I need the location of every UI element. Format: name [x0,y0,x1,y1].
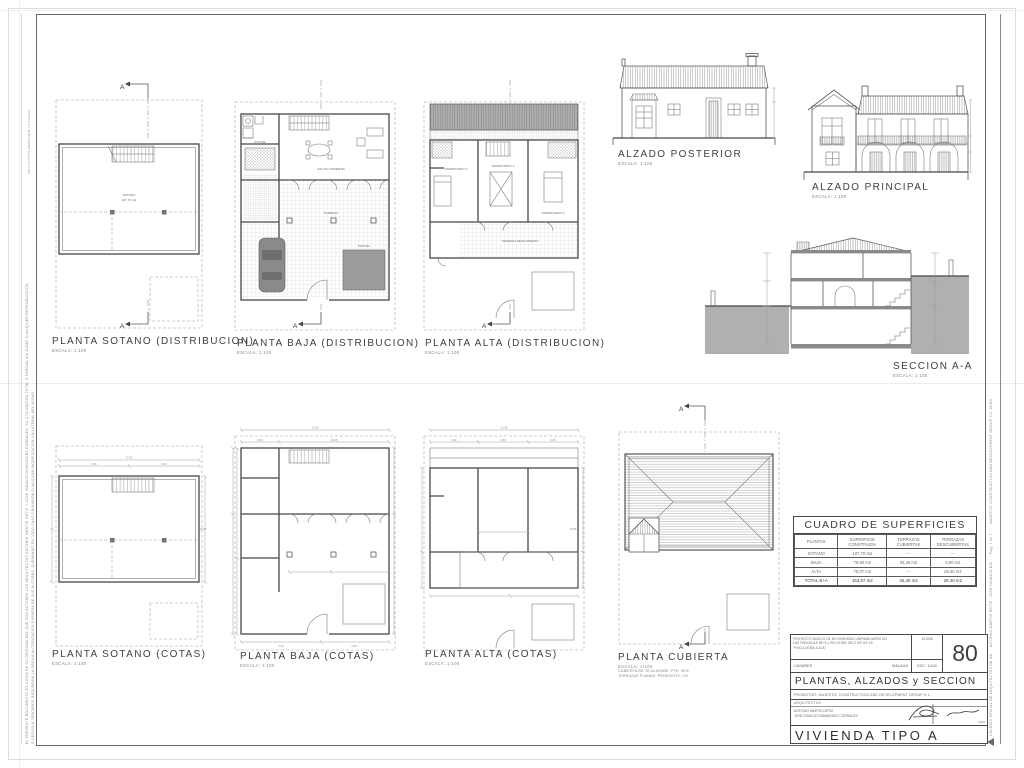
drawing-alzado-principal [800,40,972,185]
coa-stamp-icon [987,738,994,746]
archival-code: 08L2-42/T705-0929Z/URN-LU/TU2/A3 [27,54,31,174]
svg-text:4,90: 4,90 [161,462,167,466]
drawing-planta-sotano-distribucion: A SOTANO 107,70 m2 A [50,72,208,340]
svg-text:6,45: 6,45 [91,462,97,466]
room-label-terraza: TERRAZA [324,211,339,215]
label-planta-baja-cotas: PLANTA BAJA (COTAS)ESCALA: 1:100 [240,652,375,668]
balcony-railing [858,136,966,145]
drawing-planta-baja-cotas: 12,95 3,80 10,65 2,60 6,45 [231,412,399,654]
promoter-line: PROMOTOR: MAJESTIC CONSTRUCTION AND DEVE… [791,690,987,700]
tower [808,90,860,172]
label-planta-sotano-distribucion: PLANTA SOTANO (DISTRIBUCION)ESCALA: 1:10… [52,337,254,353]
signature-icon [903,702,981,724]
left-disclaimer-line2: O CESION A TERCEROS REQUERIRA LA PREVIA … [31,184,35,744]
titleblock-date: 121006 [911,635,942,659]
svg-text:10,65: 10,65 [570,527,577,531]
titleblock-code: 0508 [978,720,985,724]
label-alzado-principal: ALZADO PRINCIPALESCALA: 1:100 [812,183,929,199]
drawing-planta-sotano-cotas: 12,95 6,45 4,90 10,65 [50,418,208,650]
room-label-cocina: COCINA [254,140,267,144]
label-planta-cubierta: PLANTA CUBIERTA ESCALA: 1/100 CUBIERTA D… [618,653,729,679]
sheet-number: 80 [942,635,987,672]
svg-text:3,80: 3,80 [500,438,506,442]
room-label-dorm2: DORMITORIO 2 [492,164,515,168]
svg-text:10,65: 10,65 [200,527,207,531]
drawing-planta-alta-distribucion: DORMITORIO 1 DORMITORIO 2 DORMITORIO 3 T… [420,72,588,340]
basement-stair [108,146,154,162]
pool [343,250,385,290]
svg-text:A: A [482,323,487,330]
table-total-row: TOTAL B+A153,87 m2 26,40 m229,40 m2 [795,576,976,585]
label-planta-baja-distribucion: PLANTA BAJA (DISTRIBUCION)ESCALA: 1:100 [237,339,419,355]
table-row: SOTANO107,70 m2 ------ [795,549,976,558]
room-label-dorm3: DORMITORIO 3 [542,211,565,215]
earth-right [911,276,969,354]
table-row: ALTA75,07 m2 ---26,40 m2 [795,567,976,576]
titleblock-municipality: CASARES [794,664,812,668]
left-disclaimer-line1: EL PRESENTE DOCUMENTO ES COPIA DE SU ORI… [25,184,29,744]
svg-text:12,95: 12,95 [126,456,133,460]
svg-text:6,45: 6,45 [351,644,357,648]
drawing-planta-alta-cotas: 12,95 4,90 3,80 2,60 10,65 [420,412,588,654]
drawing-sheet: 08L2-42/T705-0929Z/URN-LU/TU2/A3 EL PRES… [0,0,1024,768]
car [259,238,285,292]
titleblock-scale: ESC. 1/100 [911,660,942,672]
section-marker-a-top: A [120,84,125,91]
beds [434,172,562,206]
superficies-table: CUADRO DE SUPERFICIES PLANTASSUPERFICIE … [793,516,977,587]
drawing-planta-baja-distribucion: COCINA SALON COMEDOR TERRAZA [231,72,399,340]
earth-left [705,306,789,354]
svg-text:12,95: 12,95 [312,426,319,430]
project-description: PROYECTO BASICO DE 83 VIVIENDAS UNIFAMIL… [791,635,911,659]
label-planta-alta-distribucion: PLANTA ALTA (DISTRIBUCION)ESCALA: 1:100 [425,339,605,355]
svg-text:A: A [293,323,298,330]
label-planta-alta-cotas: PLANTA ALTA (COTAS)ESCALA: 1:100 [425,650,558,666]
bay-window [630,94,658,138]
svg-text:2,60: 2,60 [278,644,284,648]
svg-text:A: A [679,644,684,651]
dimension-lines [50,458,207,584]
label-seccion-aa: SECCION A-AESCALA: 1:100 [893,362,973,378]
right-company-text: MAJESTIC CONSTRUCTION AND DEVELOPMENT GR… [989,399,993,524]
right-architects-text: ANTONIO MARTIN ORTIZ . JOSE IGNACIO DOMI… [989,562,993,647]
roof-band [430,104,578,130]
svg-text:12,95: 12,95 [501,426,508,430]
titleblock-province: MALAGA [892,664,908,668]
furniture [306,128,383,159]
section-marker-a-bottom: A [120,323,125,330]
drawing-planta-cubierta: A A [615,398,783,650]
svg-text:2,60: 2,60 [550,438,556,442]
drawing-seccion-aa [703,236,971,358]
room-label-dorm1: DORMITORIO 1 [445,167,468,171]
stairs-section [885,290,910,344]
svg-text:4,90: 4,90 [451,438,457,442]
right-page-text: Pag. 1 de 7 [989,532,993,554]
room-label-salon: SALON COMEDOR [317,167,345,171]
label-planta-sotano-cotas: PLANTA SOTANO (COTAS)ESCALA: 1:100 [52,650,206,666]
room-label-terraza-desc: TERRAZA DESCUBIERTA [502,239,540,243]
arches [862,142,958,172]
table-row: BAJA78,80 m2 26,40 m23,00 m2 [795,558,976,567]
room-area-sotano: 107,70 m2 [122,198,137,202]
dwelling-title: VIVIENDA TIPO A [791,726,987,745]
label-alzado-posterior: ALZADO POSTERIORESCALA: 1:100 [618,150,742,166]
room-label-piscina: PISCINA [358,244,371,248]
room-label-sotano: SOTANO [123,193,136,197]
right-colegio-text: COLEGIO OFICIAL DE ARQUITECTOS DE MALAGA… [989,654,993,736]
sheet-title: PLANTAS, ALZADOS y SECCION [791,673,987,690]
title-block: PROYECTO BASICO DE 83 VIVIENDAS UNIFAMIL… [790,634,988,744]
architects-section: ARQUITECTOS ANTONIO MARTIN ORTIZ JOSE IG… [791,700,987,726]
dimension-lines [420,428,585,598]
drawing-alzado-posterior [610,50,778,150]
svg-text:A: A [679,406,684,413]
superficies-table-title: CUADRO DE SUPERFICIES [794,517,976,534]
door [706,98,721,138]
svg-text:3,80: 3,80 [257,438,263,442]
left-margin-strip: 08L2-42/T705-0929Z/URN-LU/TU2/A3 EL PRES… [21,14,37,744]
roof-dormer [629,518,659,552]
table-header-row: PLANTASSUPERFICIE CONSTRUIDA TERRAZAS CU… [795,535,976,549]
stair [289,116,329,130]
svg-text:10,65: 10,65 [331,438,338,442]
